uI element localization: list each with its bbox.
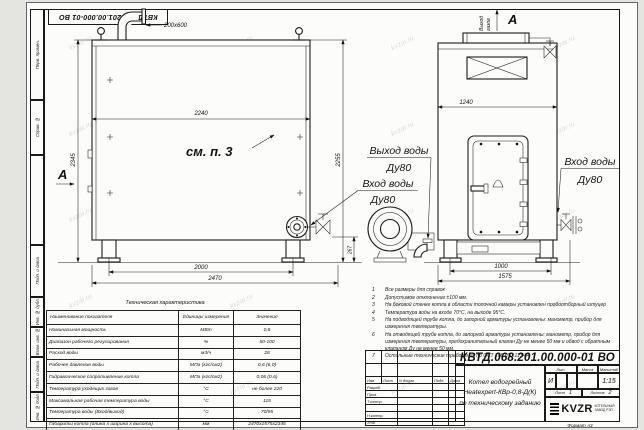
dim-1000-text: 1000 [494,264,508,270]
signature-label: Т.контр. [366,398,398,405]
sheet-cell: Лист 1 [545,389,582,397]
signature-row [366,405,465,412]
note-number: 3 [372,302,375,309]
spec-cell: МПа (кгс/см2) [179,372,234,384]
note-text: На боковой стенке котла в области топочн… [385,302,606,308]
dim-2470-text: 2470 [207,276,222,282]
water-inlet2-line1: Вход воды [565,156,616,168]
chimney-elbow [118,9,146,40]
side-view [424,33,582,263]
water-inlet-flange [287,217,308,238]
lit-header: Лит. [545,365,577,373]
change-header: Подп. [433,377,449,384]
spec-cell: 50-100 [234,336,301,348]
spec-table-title: Техническая характеристика [46,300,284,310]
title-block: Изм Лист N докум. Подп. Дата Разраб. Про… [365,350,620,422]
note-number: 1 [372,287,375,294]
signature-label: Разраб. [366,384,398,391]
spec-cell: °С [179,383,234,395]
water-inlet2-label: Вход воды Ду80 [558,156,619,212]
note-item: 5На подводящей трубе котла, до запорной … [371,317,618,331]
product-name-line1: Котел водогрейный [469,378,532,388]
note-number: 6 [372,332,375,339]
spec-cell: Температура уходящих газов [47,383,179,395]
logo-bars-icon [550,403,559,416]
dim-2345-text: 2345 [71,153,77,168]
spec-cell: Температура воды (Вход/выход) [47,407,179,419]
note-text: Температура воды на входе 70°С, на выход… [385,310,505,316]
note-text: Допустимое отклонение ±100 мм. [385,295,467,301]
sheets-cell: Листов 2 [582,389,620,397]
dim-1240-text: 1240 [459,100,473,106]
spec-cell: МВт [179,325,234,337]
signature-row: Разраб. [366,384,465,391]
dim-duct: 200x600 [146,23,188,29]
signature-row: Пров. [366,391,465,398]
lit-cell-3 [567,373,578,389]
note-item: 3На боковой стенке котла в области топоч… [371,302,618,309]
spec-cell: не более 220 [234,383,301,395]
eyebolt-right [293,28,305,40]
lit-cell-2 [556,373,567,389]
see-note-text: см. п. 3 [186,144,233,159]
spec-row: Расход водым3/ч28 [47,348,301,360]
scale-header: Масштаб [598,365,620,373]
spec-cell: Габариты котла (длина х ширина х высота) [47,419,179,430]
gas-outlet-word1: Выход [479,16,485,31]
note-text: Все размеры для справок [385,287,445,293]
spec-row: Габариты котла (длина х ширина х высота)… [47,419,301,430]
water-inlet-line1: Вход воды [363,178,414,190]
dim-2470: 2470 [92,265,338,287]
lit-value: И [545,373,556,389]
spec-row: Температура уходящих газов°Сне более 220 [47,383,301,395]
spec-cell: 115 [234,395,301,407]
hatch-panel [467,57,527,79]
note-number: 5 [372,317,375,324]
dim-2000-text: 2000 [193,265,208,271]
water-outlet-line2: Ду80 [386,162,412,174]
format-label: Формат А3 [540,423,620,428]
boiler-door [468,136,528,240]
spec-cell: м3/ч [179,348,234,360]
spec-cell: % [179,336,234,348]
sheet-value: 1 [569,390,572,396]
spec-row: Номинальная мощностьМВт0,8 [47,325,301,337]
product-name: Котел водогрейный Heatexpert-КВр-0,8-Д(К… [455,365,545,422]
blower-fan [368,207,434,262]
gas-outlet-word2: газов [486,18,492,31]
valve-front [308,214,331,234]
spec-cell: 28 [234,348,301,360]
signature-label: Утв. [366,419,398,426]
signature-row: Н.контр. [366,412,465,419]
drawing-sheet-page: kvzar.rukvzar.rukvzar.rukvzar.rukvzar.ru… [0,0,644,430]
note-number: 4 [372,310,375,317]
water-inlet-line2: Ду80 [370,194,396,206]
note-text: На подводящей трубе котла, до запорной а… [385,317,602,330]
gas-outlet-callout: Выход газов А [479,10,517,31]
spec-cell: °С [179,407,234,419]
spec-header-name: Наименование показателя [47,311,179,325]
spec-table: Техническая характеристика Наименование … [46,300,284,430]
dim-267-text: 267 [348,246,354,256]
spec-cell: Диапазон рабочего регулирования [47,336,179,348]
spec-cell: 0,6 (6,0) [234,360,301,372]
sheets-label: Листов [590,390,604,395]
spec-header-value: Значение [234,311,301,325]
signature-label: Н.контр. [366,412,398,419]
product-name-line3: по техническому заданию [459,399,540,409]
signature-label [366,405,398,412]
mass-header: Масса [577,365,598,373]
section-a-text: А [57,167,67,182]
water-outlet-line1: Выход воды [369,145,428,157]
spec-cell: 0,8 [234,325,301,337]
title-block-change-table: Изм Лист N докум. Подп. Дата Разраб. Про… [365,350,465,426]
spec-cell: 2470х1575х2345 [234,419,301,430]
note-number: 2 [372,295,375,302]
dim-1575-text: 1575 [498,274,512,280]
change-header: N докум. [398,377,433,384]
signature-row: Утв. [366,419,465,426]
sheets-value: 2 [609,390,612,396]
spec-cell: МПа (кгс/см2) [179,360,234,372]
logo-subtext: КОТЕЛЬНЫЙ ЗАВОД РЭП [595,405,615,413]
view-a-text: А [507,12,517,27]
eyebolt-left [95,28,107,40]
section-a-label: А [56,167,74,184]
sheet-label: Лист [555,390,565,395]
note-item: 1Все размеры для справок [371,287,618,294]
signature-row: Т.контр. [366,398,465,405]
spec-cell: °С [179,395,234,407]
logo-text: KVZR [561,403,592,415]
water-inlet2-line2: Ду80 [577,174,603,186]
spec-row: Максимальная рабочая температура воды°С1… [47,395,301,407]
change-header: Лист [382,377,398,384]
dim-2255-text: 2255 [336,153,342,168]
signature-label: Пров. [366,391,398,398]
product-name-line2: Heatexpert-КВр-0,8-Д(К) [464,388,537,398]
spec-cell: Гидравлическое сопротивление котла [47,372,179,384]
dim-2000: 2000 [109,258,293,276]
mass-value [577,373,598,389]
scale-value: 1:15 [598,373,620,389]
spec-row: Температура воды (Вход/выход)°С70/95 [47,407,301,419]
spec-cell: 70/95 [234,407,301,419]
spec-cell: Максимальная рабочая температура воды [47,395,179,407]
spec-cell: Рабочее давление воды [47,360,179,372]
logo-subtext-line2: ЗАВОД РЭП [595,409,615,413]
front-view [58,9,362,263]
spec-row: Рабочее давление водыМПа (кгс/см2)0,6 (6… [47,360,301,372]
doc-number: КВТД.068.201.00.000-01 ВО [455,350,620,365]
spec-cell: Номинальная мощность [47,325,179,337]
note-text: На отводящей трубе котла, до запорной ар… [385,332,610,352]
company-logo-cell: KVZR КОТЕЛЬНЫЙ ЗАВОД РЭП [545,397,620,423]
dim-2240-text: 2240 [193,111,208,117]
note-item: 4Температура воды на входе 70°С, на выхо… [371,310,618,317]
spec-row: Диапазон рабочего регулирования%50-100 [47,336,301,348]
change-header-row: Изм Лист N докум. Подп. Дата [366,377,465,384]
spec-row: Гидравлическое сопротивление котлаМПа (к… [47,372,301,384]
valve-side-inlet [557,214,582,234]
dim-duct-text: 200x600 [163,23,188,29]
spec-header-units: Единицы измерения [179,311,234,325]
spec-header-row: Наименование показателя Единицы измерени… [47,311,301,325]
spec-cell: Расход воды [47,348,179,360]
change-header: Изм [366,377,382,384]
spec-cell: мм [179,419,234,430]
spec-cell: 0,06 (0,6) [234,372,301,384]
note-item: 2Допустимое отклонение ±100 мм. [371,295,618,302]
dim-267: 267 [332,237,358,262]
